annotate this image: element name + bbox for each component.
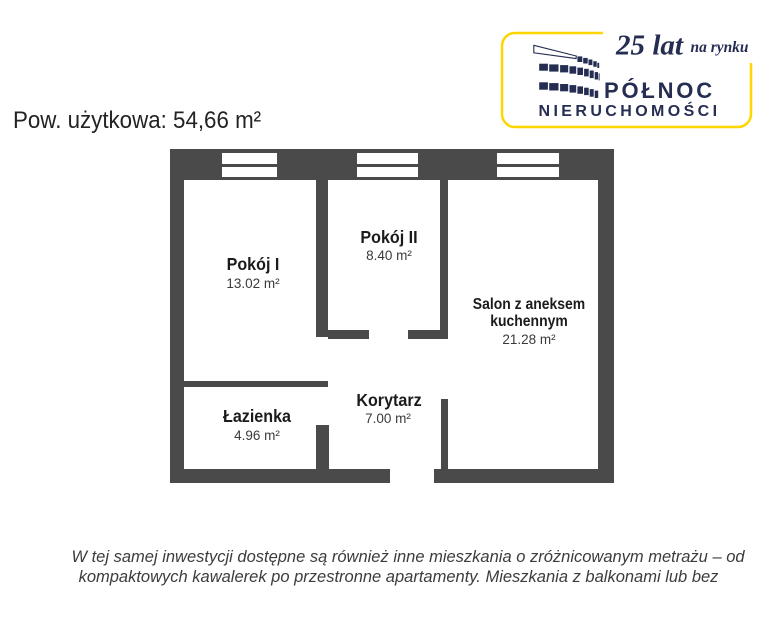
svg-text:NIERUCHOMOŚCI: NIERUCHOMOŚCI <box>539 101 721 120</box>
svg-text:25 lat: 25 lat <box>615 30 684 62</box>
svg-text:PÓŁNOC: PÓŁNOC <box>604 78 715 103</box>
svg-text:na rynku: na rynku <box>691 39 749 56</box>
